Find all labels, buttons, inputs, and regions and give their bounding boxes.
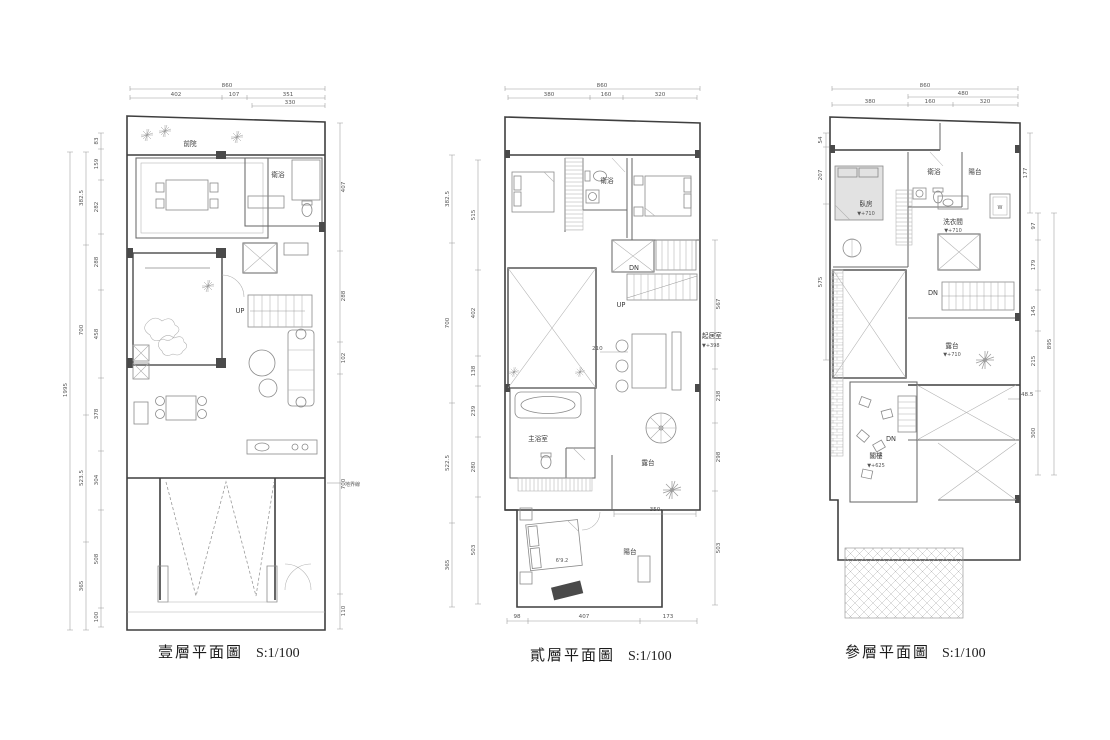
dim-text: 173 bbox=[663, 614, 674, 620]
plan-second-floor: 860 380 160 320 382.5 700 522.5 365 515 … bbox=[445, 83, 722, 664]
dim-text: 100 bbox=[94, 611, 100, 622]
dim-text: 138 bbox=[471, 365, 477, 376]
dim-text: 351 bbox=[283, 92, 294, 98]
laundry-elevation: ▼+710 bbox=[944, 228, 962, 234]
dim-text: 54 bbox=[818, 136, 824, 144]
plan2-dimensions-right: 567 238 298 503 bbox=[712, 240, 722, 605]
dim-text: 522.5 bbox=[445, 455, 451, 471]
room-label-front-yard: 前院 bbox=[183, 139, 197, 148]
dim-text: 860 bbox=[920, 83, 931, 89]
dim-text: 378 bbox=[94, 408, 100, 419]
dim-text: 239 bbox=[471, 405, 477, 416]
dim-text: 508 bbox=[94, 553, 100, 564]
dim-text: 107 bbox=[229, 92, 240, 98]
dim-text: 159 bbox=[94, 158, 100, 169]
dim-text: 860 bbox=[597, 83, 608, 89]
dim-text: 210 bbox=[592, 346, 603, 352]
dim-text: 700 bbox=[445, 317, 451, 328]
room-label-living: 起居室 bbox=[702, 331, 722, 340]
stair-label-dn-attic: DN bbox=[886, 435, 896, 443]
washer-label: W bbox=[998, 205, 1003, 211]
plan1-walls bbox=[127, 116, 325, 630]
dim-text: 503 bbox=[471, 544, 477, 555]
dim-text: 282 bbox=[94, 202, 100, 213]
dim-text: 503 bbox=[716, 542, 722, 553]
dim-text: 515 bbox=[471, 209, 477, 220]
dim-text: 1995 bbox=[63, 382, 69, 397]
dim-text: 110 bbox=[341, 605, 347, 616]
property-line-label: 地界線 bbox=[345, 481, 360, 488]
dim-text: 207 bbox=[818, 169, 824, 180]
dim-text: 407 bbox=[341, 181, 347, 192]
room-label-balcony: 陽台 bbox=[968, 167, 982, 176]
dim-text: 480 bbox=[958, 91, 969, 97]
room-label-balcony: 陽台 bbox=[623, 547, 637, 556]
plan2-scale-text: S:1/100 bbox=[628, 649, 672, 664]
dim-text-offset: 48.5 bbox=[1021, 392, 1034, 398]
floor-plans-svg: 860 402 107 351 330 1995 382.5 700 523.5… bbox=[0, 0, 1110, 740]
plan2-title-text: 貳層平面圖 bbox=[530, 647, 615, 664]
plan3-dimensions-top: 860 480 380 160 320 bbox=[832, 83, 1018, 107]
dim-text: 97 bbox=[1031, 222, 1037, 230]
plan2-walls bbox=[505, 117, 700, 607]
dim-text: 365 bbox=[79, 580, 85, 591]
dim-text: 382.5 bbox=[79, 190, 85, 206]
plan2-dimensions-bottom: 98 407 173 bbox=[507, 614, 697, 624]
dim-text: 280 bbox=[471, 461, 477, 472]
dim-text: 860 bbox=[222, 83, 233, 89]
dim-text: 288 bbox=[341, 290, 347, 301]
dim-text: 380 bbox=[865, 99, 876, 105]
attic-elevation: ▼+625 bbox=[867, 463, 885, 469]
plan1-dimensions-right: 407 288 102 700 110 bbox=[337, 123, 347, 629]
stair-label-up: UP bbox=[617, 301, 626, 309]
terrace-elevation: ▼+710 bbox=[943, 352, 961, 358]
dim-text: 298 bbox=[716, 451, 722, 462]
dim-text: 567 bbox=[716, 298, 722, 309]
plan2-title: 貳層平面圖 S:1/100 bbox=[530, 647, 672, 664]
plan-third-floor: 860 480 380 160 320 54 207 575 177 97 17… bbox=[818, 83, 1057, 661]
dim-text: 98 bbox=[513, 614, 521, 620]
plan1-title: 壹層平面圖 S:1/100 bbox=[158, 644, 300, 661]
dim-text: 83 bbox=[94, 137, 100, 145]
dim-text: 382.5 bbox=[445, 191, 451, 207]
drawing-sheet: 860 402 107 351 330 1995 382.5 700 523.5… bbox=[0, 0, 1110, 740]
plan2-labels: 衛浴 DN UP 起居室 ▼+398 主浴室 露台 陽台 6'9.2 210 3… bbox=[528, 176, 722, 564]
dim-text: 160 bbox=[925, 99, 936, 105]
bedroom-elevation: ▼+710 bbox=[857, 211, 875, 217]
plan3-dimensions-left: 54 207 575 bbox=[818, 133, 829, 360]
dim-text: 304 bbox=[94, 474, 100, 485]
plan1-dimensions-left: 1995 382.5 700 523.5 365 83 159 282 288 … bbox=[63, 133, 104, 630]
room-label-bathroom: 衛浴 bbox=[271, 170, 285, 179]
dim-text: 700 bbox=[79, 324, 85, 335]
room-label-laundry: 洗衣間 bbox=[943, 217, 963, 226]
room-label-bathroom: 衛浴 bbox=[600, 176, 614, 185]
dim-text: 402 bbox=[471, 308, 477, 319]
plan2-fixtures bbox=[508, 158, 697, 600]
room-label-bedroom: 臥房 bbox=[859, 199, 873, 208]
dim-text: 160 bbox=[601, 92, 612, 98]
dim-text: 330 bbox=[285, 100, 296, 106]
plan3-scale-text: S:1/100 bbox=[942, 646, 986, 661]
dim-text: 238 bbox=[716, 390, 722, 401]
dim-text: 380 bbox=[544, 92, 555, 98]
plan2-dimensions-left: 382.5 700 522.5 365 515 402 138 239 280 … bbox=[445, 155, 481, 607]
plan1-title-text: 壹層平面圖 bbox=[158, 644, 243, 661]
room-label-attic: 閣樓 bbox=[869, 451, 883, 460]
dim-text: 458 bbox=[94, 328, 100, 339]
dim-text: 300 bbox=[1031, 427, 1037, 438]
dim-text: 407 bbox=[579, 614, 590, 620]
room-label-terrace: 露台 bbox=[945, 341, 959, 350]
plan1-fixtures bbox=[133, 125, 342, 602]
dim-text: 365 bbox=[445, 559, 451, 570]
stair-label-up: UP bbox=[236, 307, 245, 315]
dim-text: 320 bbox=[655, 92, 666, 98]
plan1-dimensions-top: 860 402 107 351 330 bbox=[130, 83, 325, 108]
plan-first-floor: 860 402 107 351 330 1995 382.5 700 523.5… bbox=[63, 83, 360, 661]
dim-text: 895 bbox=[1047, 338, 1053, 349]
dim-text: 575 bbox=[818, 276, 824, 287]
room-label-terrace: 露台 bbox=[641, 458, 655, 467]
stair-label-dn: DN bbox=[928, 289, 938, 297]
dim-text: 288 bbox=[94, 256, 100, 267]
dim-text: 179 bbox=[1031, 259, 1037, 270]
plan2-dimensions-top: 860 380 160 320 bbox=[505, 83, 700, 100]
dim-text: 102 bbox=[341, 353, 347, 364]
dim-text: 350 bbox=[650, 507, 661, 513]
plan3-dimensions-right: 177 97 179 145 215 300 895 48.5 bbox=[1008, 133, 1057, 475]
plan1-scale-text: S:1/100 bbox=[256, 646, 300, 661]
dim-text: 177 bbox=[1023, 167, 1029, 178]
dim-text: 215 bbox=[1031, 355, 1037, 366]
dim-text: 402 bbox=[171, 92, 182, 98]
dim-text: 145 bbox=[1031, 305, 1037, 316]
dim-text: 523.5 bbox=[79, 470, 85, 486]
plan3-title-text: 參層平面圖 bbox=[845, 644, 930, 661]
plan3-title: 參層平面圖 S:1/100 bbox=[845, 644, 986, 661]
stair-label-dn: DN bbox=[629, 264, 639, 272]
room-label-master-bath: 主浴室 bbox=[528, 434, 548, 443]
living-elevation: ▼+398 bbox=[702, 343, 720, 349]
room-label-bathroom: 衛浴 bbox=[927, 167, 941, 176]
bed-size-label: 6'9.2 bbox=[556, 558, 569, 564]
dim-text: 320 bbox=[980, 99, 991, 105]
